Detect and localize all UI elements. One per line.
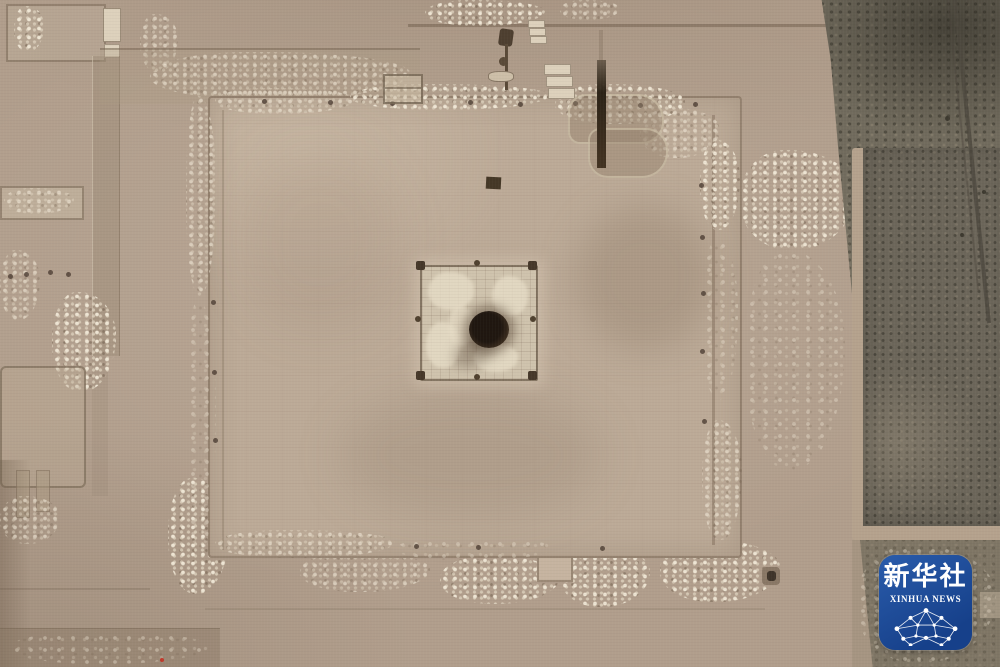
post-holes <box>699 183 704 188</box>
survey-frame <box>383 74 423 104</box>
field-dot <box>982 190 986 194</box>
pit-edge-dot <box>415 316 421 322</box>
soil-stain <box>240 150 400 330</box>
frame-rung <box>385 87 421 89</box>
small-pit-hole <box>767 571 776 581</box>
xinhua-news-watermark: 新华社 XINHUA NEWS <box>879 555 972 650</box>
instrument-pole <box>505 44 508 90</box>
red-marker <box>160 658 164 662</box>
soil-stain <box>575 205 715 350</box>
pit-corner-post <box>416 371 425 380</box>
steps <box>546 76 573 87</box>
network-dome-icon <box>887 606 965 646</box>
soil-stain <box>340 390 600 520</box>
slot-extension <box>599 30 603 62</box>
plaster-patch <box>492 276 528 316</box>
light-band <box>980 592 1000 618</box>
post-holes <box>414 544 419 549</box>
pit-edge-dot <box>474 260 480 266</box>
steps <box>548 88 575 99</box>
test-trench-slot <box>597 60 606 168</box>
post-holes <box>8 274 13 279</box>
steps <box>529 28 546 36</box>
steps <box>544 64 571 75</box>
aerial-photograph: 新华社 XINHUA NEWS <box>0 0 1000 667</box>
pit-corner-post <box>416 261 425 270</box>
boundary-line <box>205 608 765 610</box>
field-dot <box>945 116 950 121</box>
steps <box>528 20 545 28</box>
logo-english-text: XINHUA NEWS <box>890 594 961 604</box>
dark-feature <box>486 177 502 190</box>
stone-slab <box>103 8 121 42</box>
pit-corner-post <box>528 261 537 270</box>
post-holes <box>262 99 267 104</box>
instrument-tray <box>488 71 514 82</box>
well-hole <box>469 311 509 348</box>
ledge-line <box>222 110 224 550</box>
logo-chinese-text: 新华社 <box>883 564 967 590</box>
boundary-line <box>0 588 150 590</box>
pit-edge-dot <box>474 374 480 380</box>
steps <box>530 36 547 44</box>
field-dot <box>960 233 964 237</box>
pit-edge-dot <box>530 316 536 322</box>
pit-corner-post <box>528 371 537 380</box>
instrument-blob <box>499 57 508 66</box>
plaster-patch <box>428 272 474 310</box>
post-holes <box>211 300 216 305</box>
